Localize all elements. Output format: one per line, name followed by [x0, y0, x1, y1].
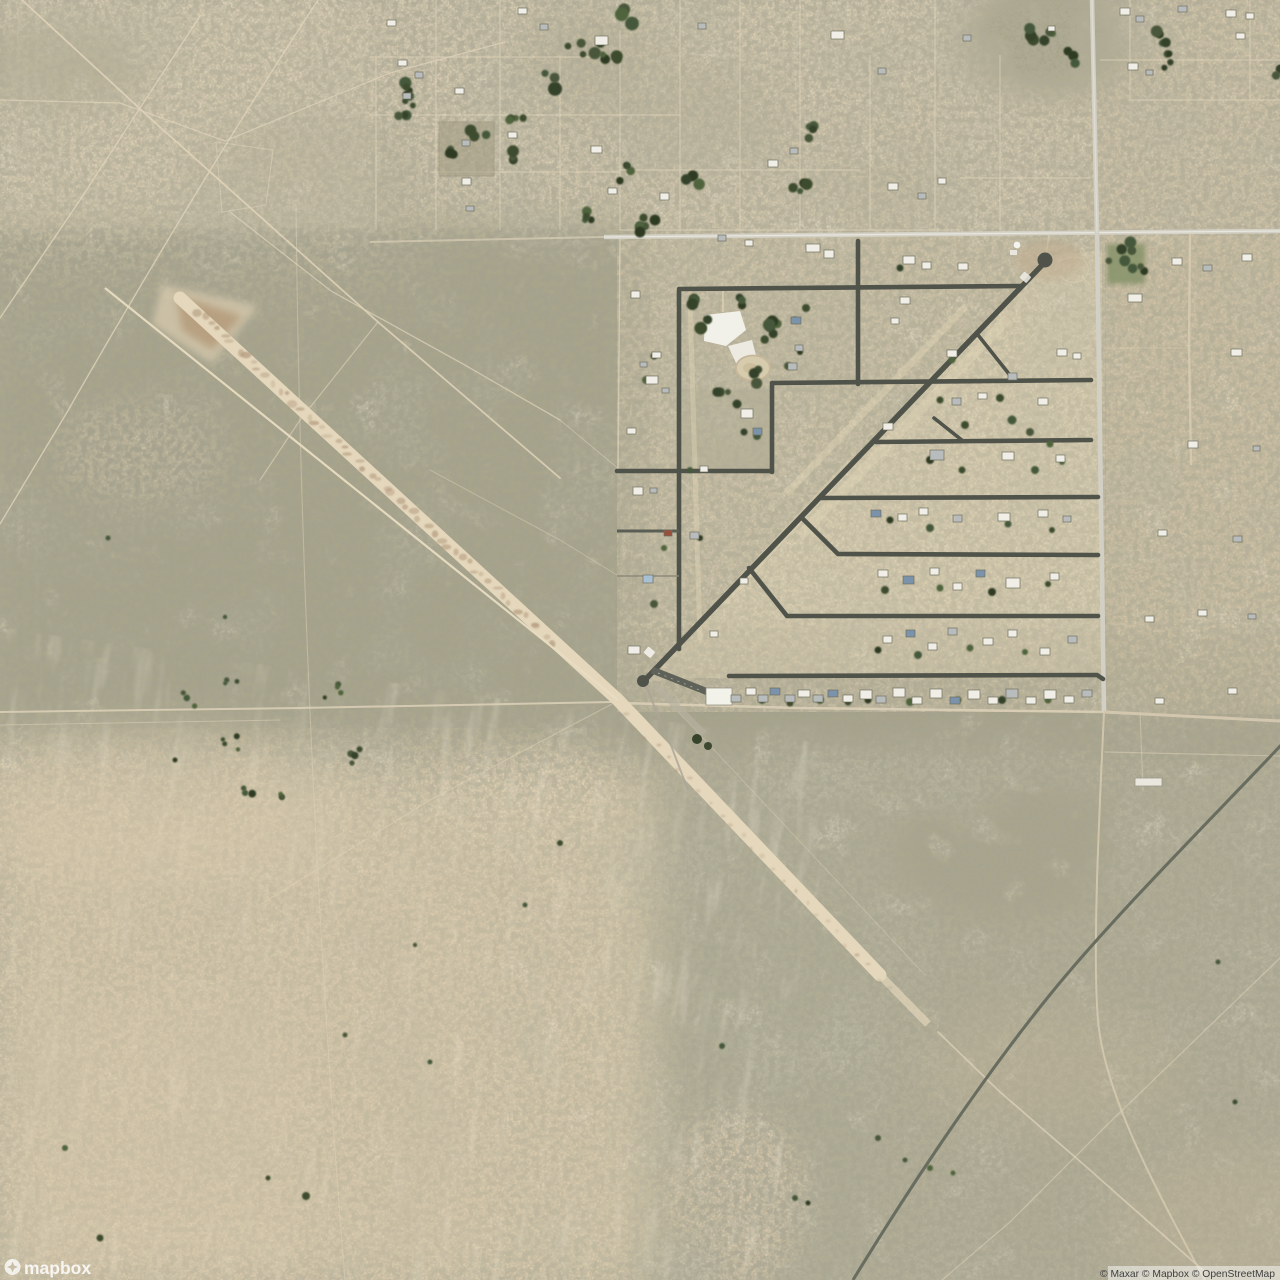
svg-text:mapbox: mapbox [24, 1258, 91, 1278]
svg-text:© Maxar © Mapbox © OpenStreetM: © Maxar © Mapbox © OpenStreetMap [1100, 1269, 1275, 1280]
